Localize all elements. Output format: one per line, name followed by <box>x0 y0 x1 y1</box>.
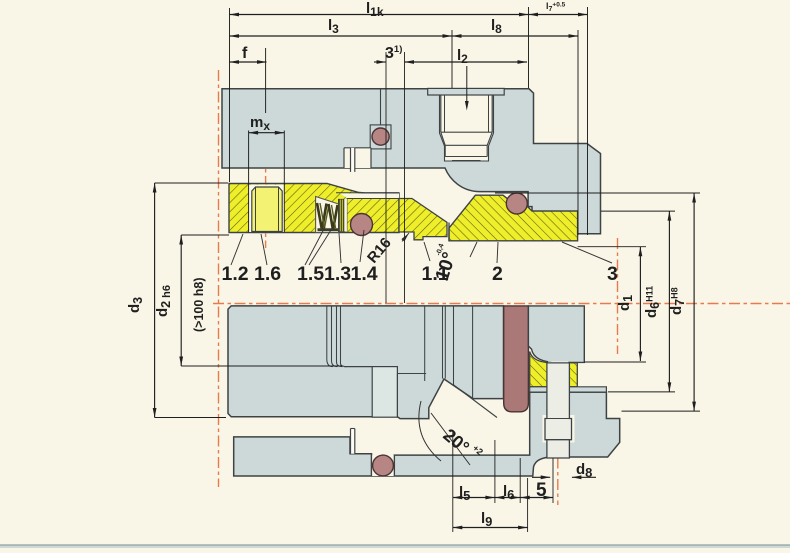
svg-text:f: f <box>242 45 248 62</box>
svg-text:1.4: 1.4 <box>351 263 378 285</box>
svg-text:5: 5 <box>536 480 547 501</box>
svg-text:3: 3 <box>607 263 618 285</box>
svg-text:1.6: 1.6 <box>254 263 281 285</box>
svg-text:2: 2 <box>492 263 503 285</box>
svg-text:(>100 h8): (>100 h8) <box>192 277 206 332</box>
svg-text:1.2: 1.2 <box>222 263 249 285</box>
svg-text:1.5: 1.5 <box>297 263 324 285</box>
svg-text:1.3: 1.3 <box>324 263 351 285</box>
